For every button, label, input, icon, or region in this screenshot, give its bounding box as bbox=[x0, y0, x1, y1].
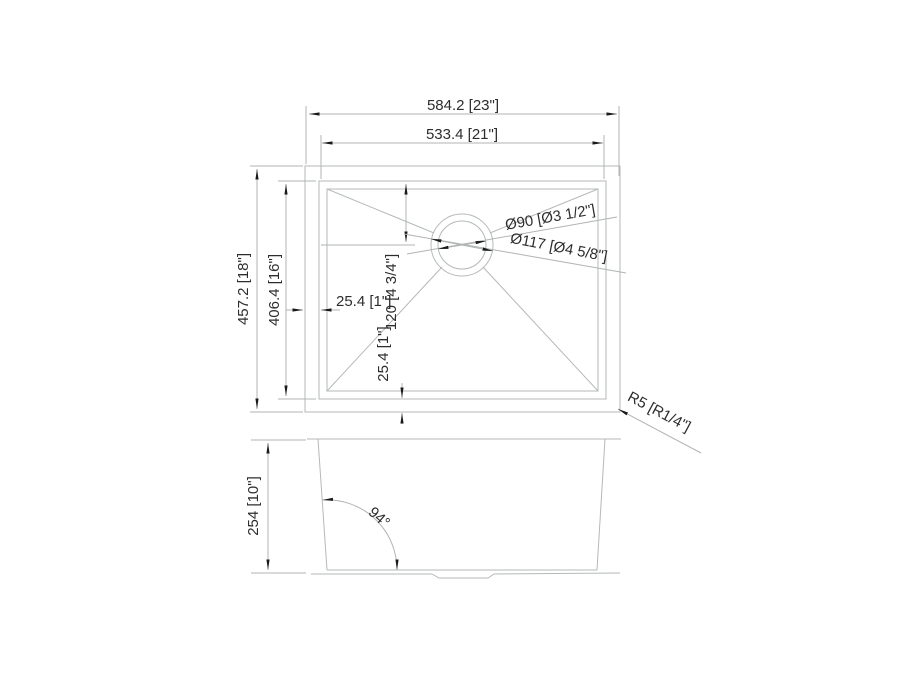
slope-line-bottom-right bbox=[483, 267, 598, 391]
dim-corner-radius: R5 [R1/4"] bbox=[618, 388, 701, 453]
leader-arrow bbox=[431, 239, 462, 245]
bowl-right-wall bbox=[597, 439, 605, 570]
slope-line-top-left bbox=[327, 189, 434, 233]
dim-bowl-depth-label: 406.4 [16"] bbox=[266, 254, 283, 326]
sink-drawing-canvas: 584.2 [23"] 533.4 [21"] 457.2 [18"] 406.… bbox=[0, 0, 907, 680]
dim-bowl-width-label: 533.4 [21"] bbox=[426, 126, 498, 143]
dim-wall-angle: 94° bbox=[323, 500, 398, 570]
front-view: 254 [10"] 94° bbox=[245, 439, 621, 578]
dim-overall-depth-label: 457.2 [18"] bbox=[235, 253, 252, 325]
top-view: 584.2 [23"] 533.4 [21"] 457.2 [18"] 406.… bbox=[235, 97, 701, 453]
leader-arrow bbox=[438, 245, 462, 249]
bowl-left-wall bbox=[318, 439, 327, 570]
dim-bowl-height: 254 [10"] bbox=[245, 440, 306, 573]
dim-overall-width-label: 584.2 [23"] bbox=[427, 97, 499, 114]
dim-rim-offset-bottom: 25.4 [1"] bbox=[375, 326, 402, 424]
technical-drawing-page: 584.2 [23"] 533.4 [21"] 457.2 [18"] 406.… bbox=[0, 0, 907, 680]
dim-corner-radius-label: R5 [R1/4"] bbox=[625, 388, 694, 435]
leader-arrow bbox=[462, 245, 493, 251]
dim-drain-outer-diameter: Ø117 [Ø4 5/8"] bbox=[404, 230, 626, 273]
angle-arc bbox=[323, 500, 398, 570]
dim-bowl-height-label: 254 [10"] bbox=[245, 476, 262, 536]
dim-wall-angle-label: 94° bbox=[365, 504, 393, 532]
underside-drain-recess-line bbox=[311, 573, 620, 578]
outer-rim-outline bbox=[305, 166, 620, 412]
dim-rim-offset-bottom-label: 25.4 [1"] bbox=[375, 326, 392, 381]
dim-drain-outer-diameter-label: Ø117 [Ø4 5/8"] bbox=[509, 230, 609, 265]
dim-drain-offset-label: 120 [4 3/4"] bbox=[383, 254, 400, 330]
dim-bowl-depth: 406.4 [16"] bbox=[266, 181, 316, 399]
dim-bowl-width: 533.4 [21"] bbox=[321, 126, 604, 179]
dim-rim-offset-left: 25.4 [1"] bbox=[286, 293, 391, 310]
